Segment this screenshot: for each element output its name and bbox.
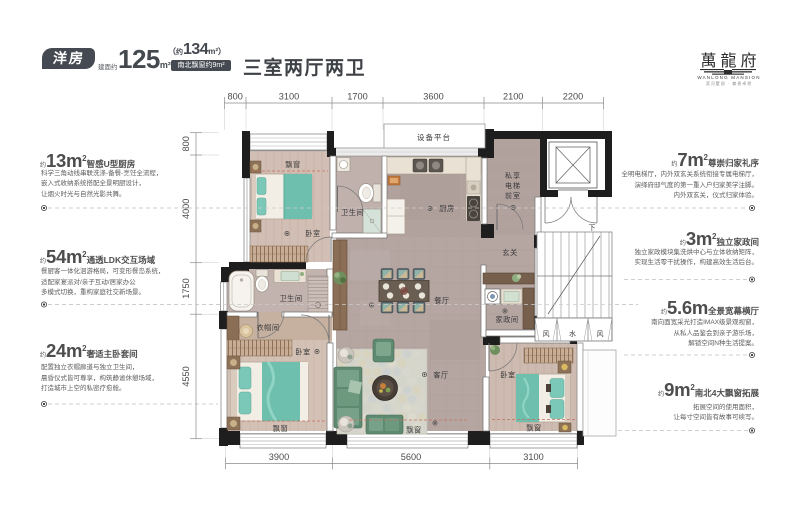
svg-text:前室: 前室 xyxy=(505,191,521,200)
svg-text:3100: 3100 xyxy=(523,452,543,462)
svg-text:客厅: 客厅 xyxy=(433,371,448,380)
svg-text:水: 水 xyxy=(569,329,576,338)
svg-text:2100: 2100 xyxy=(503,92,523,102)
svg-text:飘窗: 飘窗 xyxy=(526,424,541,433)
svg-text:玄关: 玄关 xyxy=(502,248,517,257)
svg-text:3900: 3900 xyxy=(269,452,289,462)
svg-text:厨房: 厨房 xyxy=(439,204,454,213)
svg-text:2200: 2200 xyxy=(563,92,583,102)
svg-text:800: 800 xyxy=(181,136,191,151)
svg-text:卧室: 卧室 xyxy=(295,348,310,357)
svg-text:1750: 1750 xyxy=(181,278,191,298)
svg-text:家政间: 家政间 xyxy=(495,315,518,324)
svg-text:5600: 5600 xyxy=(401,452,421,462)
svg-text:3100: 3100 xyxy=(279,92,299,102)
svg-text:电梯: 电梯 xyxy=(505,181,521,190)
svg-text:4550: 4550 xyxy=(181,366,191,386)
svg-text:风: 风 xyxy=(543,330,550,338)
svg-text:餐厅: 餐厅 xyxy=(434,296,449,305)
svg-text:4000: 4000 xyxy=(181,199,191,219)
svg-text:飘窗: 飘窗 xyxy=(285,160,300,169)
svg-text:下: 下 xyxy=(589,224,596,232)
svg-text:卫生间: 卫生间 xyxy=(279,294,302,303)
svg-text:飘窗: 飘窗 xyxy=(406,426,421,435)
svg-text:卧室: 卧室 xyxy=(500,371,515,380)
svg-text:私享: 私享 xyxy=(505,171,521,180)
svg-text:3600: 3600 xyxy=(423,92,443,102)
svg-text:800: 800 xyxy=(228,92,243,102)
svg-text:1700: 1700 xyxy=(347,92,367,102)
svg-text:设备平台: 设备平台 xyxy=(417,132,451,142)
svg-text:卧室: 卧室 xyxy=(305,229,320,238)
svg-text:风: 风 xyxy=(597,330,604,338)
svg-text:飘窗: 飘窗 xyxy=(273,424,288,433)
svg-text:卫生间: 卫生间 xyxy=(341,208,364,217)
svg-text:衣帽间: 衣帽间 xyxy=(256,323,279,332)
